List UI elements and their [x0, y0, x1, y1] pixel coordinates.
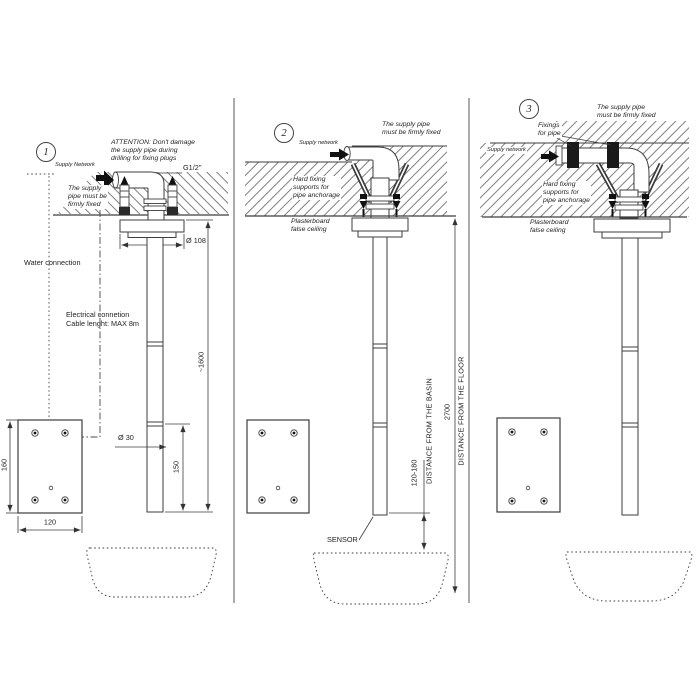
- supply-network-label: Supply network: [486, 147, 527, 154]
- spout-length-label: 150: [172, 461, 181, 473]
- supply-pipe-note: The supply pipe must be firmly fixed: [596, 104, 657, 120]
- basin-outline: [566, 552, 692, 601]
- pipe-diameter-label: Ø 30: [118, 434, 134, 443]
- plate-width-label: 120: [44, 519, 56, 528]
- panel-1-drawing: [6, 171, 229, 598]
- ceiling-escutcheon: [594, 219, 670, 238]
- floor-distance-value: 2700: [443, 404, 452, 420]
- supply-pipe-note: The supply pipe must be firmly fixed: [67, 185, 108, 209]
- sensor-label: SENSOR: [327, 536, 358, 545]
- mounting-plate: [18, 420, 82, 513]
- sensor-leader: [359, 517, 373, 540]
- basin-distance-label: DISTANCE FROM THE BASIN: [425, 378, 434, 484]
- electrical-connection-label: Electrical connetion Cable lenght: MAX 8…: [66, 311, 139, 329]
- supply-network-label: Supply network: [299, 140, 338, 147]
- basin-outline: [87, 548, 216, 597]
- ceiling-escutcheon: [352, 218, 408, 237]
- water-supply-route: [27, 174, 55, 420]
- panel-3-number: 3: [526, 104, 531, 115]
- hard-fixing-note: Hard fixing supports for pipe anchorage: [542, 181, 591, 205]
- ceiling-escutcheon: [120, 220, 184, 238]
- fixings-for-pipe-label: Fixings for pipe: [537, 122, 562, 138]
- spout-pipe: [373, 237, 387, 515]
- panel-2-badge: 2: [274, 123, 294, 143]
- basin-outline: [314, 553, 449, 604]
- installation-diagram: 1 ATTENTION: Don't damage the supply pip…: [0, 0, 700, 700]
- supply-pipe-note: The supply pipe must be firmly fixed: [382, 121, 441, 137]
- plasterboard-label: Plasterboard false ceiling: [290, 218, 331, 234]
- ceiling-hatch-upper: [552, 121, 689, 143]
- height-1600-label: ~1600: [197, 352, 206, 373]
- plasterboard-label: Plasterboard false ceiling: [529, 219, 570, 235]
- panel-1-badge: 1: [36, 142, 56, 162]
- panel-2-number: 2: [281, 128, 286, 139]
- spout-pipe: [622, 238, 638, 515]
- g-thread-label: G1/2": [183, 164, 201, 173]
- line-art: [0, 0, 700, 700]
- spout-pipe: [147, 238, 163, 513]
- mounting-plate: [247, 420, 309, 513]
- attention-note: ATTENTION: Don't damage the supply pipe …: [111, 139, 195, 163]
- panel-3-badge: 3: [519, 99, 539, 119]
- water-connection-label: Water connection: [24, 259, 81, 268]
- floor-distance-label: DISTANCE FROM THE FLOOR: [457, 356, 466, 465]
- supply-network-label: Supply Network: [55, 162, 95, 169]
- panel-1-number: 1: [43, 147, 48, 158]
- plate-height-label: 160: [0, 459, 9, 471]
- basin-distance-value: 120-180: [410, 460, 419, 487]
- escutcheon-diameter-label: Ø 108: [186, 237, 206, 246]
- mounting-plate: [497, 418, 560, 512]
- hard-fixing-note: Hard fixing supports for pipe anchorage: [292, 176, 341, 200]
